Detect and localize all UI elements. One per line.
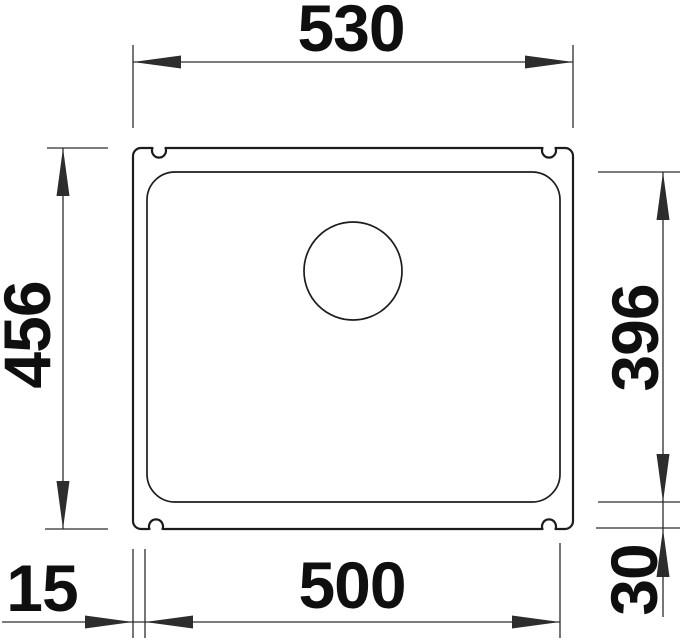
arrow-left-icon: [133, 56, 181, 69]
arrow-up-icon: [657, 172, 670, 220]
arrow-right-icon: [85, 616, 133, 629]
dim-label-rim-left: 15: [6, 551, 77, 625]
dim-label-outer-width: 530: [297, 0, 404, 65]
arrow-left-icon: [145, 616, 193, 629]
dim-label-outer-height: 456: [0, 281, 64, 388]
dim-label-bowl-height: 396: [598, 284, 672, 391]
drawing-canvas: 530 456 396 500 15 30: [0, 0, 680, 640]
sink-technical-drawing: 530 456 396 500 15 30: [0, 0, 680, 640]
arrow-down-icon: [57, 481, 70, 529]
sink-outer-rim-outline: [133, 148, 573, 529]
arrow-up-icon: [57, 148, 70, 196]
dimension-arrowheads: [57, 56, 670, 629]
dimension-labels: 530 456 396 500 15 30: [0, 0, 672, 625]
dim-label-bowl-width: 500: [298, 548, 405, 622]
arrow-right-icon: [512, 616, 560, 629]
arrow-down-icon: [657, 454, 670, 502]
sink-outline-group: [133, 148, 573, 529]
drain-hole-circle: [304, 222, 402, 320]
arrow-right-icon: [525, 56, 573, 69]
dimension-lines: [2, 62, 663, 622]
dim-label-rim-bottom: 30: [597, 544, 671, 615]
